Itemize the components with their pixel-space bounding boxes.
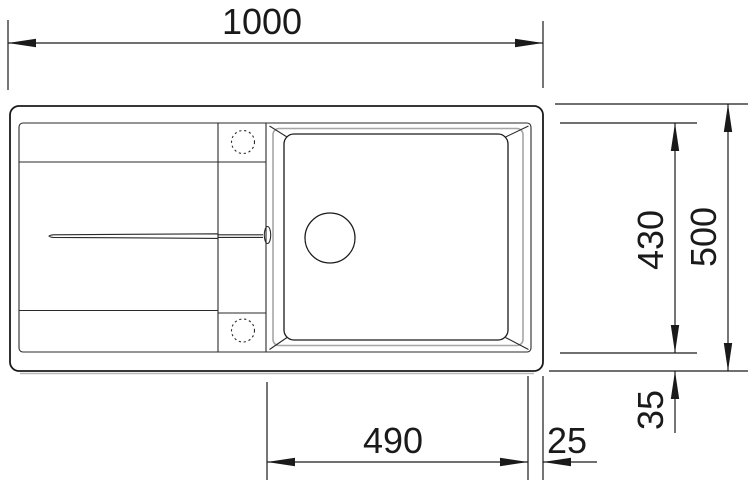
dim-490-arrow-left — [267, 458, 295, 466]
tap-hole-top — [232, 131, 255, 154]
drain-groove — [49, 234, 218, 239]
dim-35-label: 35 — [630, 390, 671, 430]
bowl — [266, 123, 529, 352]
dim-inner-depth: 430 — [560, 123, 697, 353]
dim-1000-label: 1000 — [222, 1, 302, 42]
dim-1000-arrow-right — [515, 39, 543, 47]
dim-bowl-edge-gap: 25 — [543, 376, 597, 480]
dim-430-arrow-bottom — [671, 325, 679, 353]
dim-25-label: 25 — [547, 420, 587, 461]
dim-1000-arrow-left — [8, 39, 36, 47]
dim-rim-inset: 35 — [630, 371, 679, 433]
drainboard — [19, 123, 271, 352]
drain-hole — [305, 213, 355, 263]
bowl-corner-bevel-tl — [270, 126, 288, 137]
dim-500-arrow-top — [724, 104, 732, 132]
bowl-corner-bevel-bl — [270, 338, 288, 350]
bowl-bottom-edge — [284, 134, 508, 340]
technical-drawing-canvas: 1000 500 430 35 — [0, 0, 752, 488]
dim-430-arrow-top — [671, 123, 679, 151]
bowl-corner-bevel-tr — [506, 126, 529, 137]
sink-outer-edge — [10, 106, 543, 371]
dim-500-label: 500 — [683, 207, 724, 267]
dim-35-arrow-up — [671, 371, 679, 399]
groove-outlet-oval — [264, 227, 270, 244]
dim-490-arrow-right — [500, 458, 528, 466]
dim-bowl-width: 490 — [267, 376, 528, 480]
dim-overall-width: 1000 — [8, 1, 543, 90]
bowl-corner-bevel-br — [506, 338, 529, 350]
sink-outline — [10, 106, 543, 374]
sink-dimension-drawing: 1000 500 430 35 — [0, 0, 752, 488]
dim-430-label: 430 — [630, 210, 671, 270]
tap-hole-bottom — [232, 319, 255, 342]
dim-500-arrow-bottom — [724, 343, 732, 371]
bowl-rim-bevel — [273, 129, 523, 346]
dim-490-label: 490 — [363, 420, 423, 461]
